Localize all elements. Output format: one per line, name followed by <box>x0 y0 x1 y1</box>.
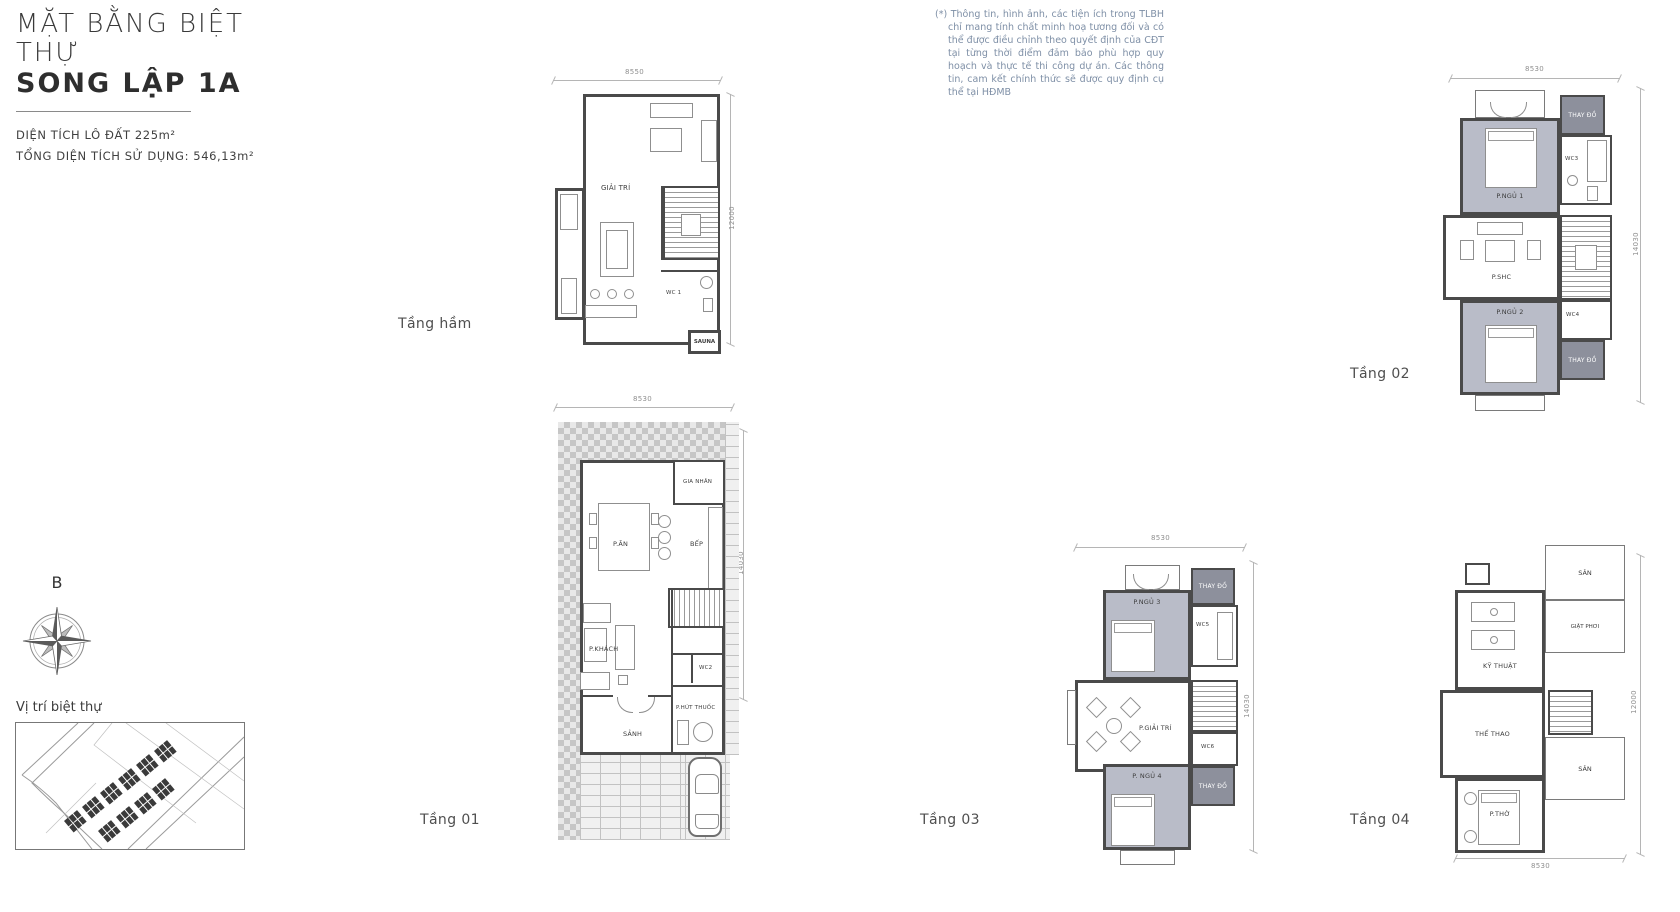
balcony <box>1475 395 1545 411</box>
total-area-text: TỔNG DIỆN TÍCH SỬ DỤNG: 546,13m² <box>16 146 316 167</box>
dining-table-furniture <box>598 503 650 571</box>
bed-furniture <box>1485 325 1537 383</box>
floor4-width-dim: 8530 <box>1531 862 1550 870</box>
room-label-wc5: WC5 <box>1196 622 1209 628</box>
floor2-width-dim-line <box>1450 78 1620 79</box>
room-label-lobby: SẢNH <box>623 730 642 738</box>
room-label-bedroom1: P.NGỦ 1 <box>1460 192 1560 200</box>
room-label-bedroom3: P.NGỦ 3 <box>1103 598 1191 606</box>
yard-top: SÂN <box>1545 545 1625 600</box>
side-balcony <box>1067 690 1076 745</box>
laundry-room: GIẶT PHƠI <box>1545 600 1625 653</box>
floor3-width-dim: 8530 <box>1151 534 1170 542</box>
bed-furniture <box>1485 128 1537 188</box>
floor1-stairs <box>668 588 725 628</box>
armchair-furniture <box>677 720 689 745</box>
coffee-table-furniture <box>1485 240 1515 262</box>
side-table-furniture <box>618 675 628 685</box>
sink-fixture <box>1567 175 1578 186</box>
floor4-height-dim: 12000 <box>1630 684 1638 720</box>
round-table-furniture <box>693 722 713 742</box>
site-map <box>15 722 245 850</box>
floor3-height-dim: 14030 <box>1243 688 1251 724</box>
armchair-furniture <box>1460 240 1474 260</box>
title-divider <box>16 111 191 112</box>
compass-rose-icon <box>14 593 100 689</box>
yard-bottom: SÂN <box>1545 737 1625 800</box>
page-title-line1: MẶT BẰNG BIỆT THỰ <box>16 10 316 67</box>
room-label-living: P.KHÁCH <box>589 645 618 653</box>
floor2-width-dim: 8530 <box>1525 65 1544 73</box>
disclaimer-note: (*) Thông tin, hình ảnh, các tiện ích tr… <box>935 8 1164 99</box>
bed-furniture <box>1111 794 1155 846</box>
floor3-stairs <box>1191 680 1238 732</box>
room-label-bedroom4: P. NGỦ 4 <box>1103 772 1191 780</box>
wc6-walls <box>1191 732 1238 766</box>
car-windshield <box>695 774 719 794</box>
interior-wall <box>691 653 693 683</box>
room-label-wc3: WC3 <box>1565 156 1578 162</box>
room-sauna: SAUNA <box>688 330 721 354</box>
floor-label-floor2: Tầng 02 <box>1350 366 1410 382</box>
room-label-kitchen: BẾP <box>690 540 703 548</box>
room-label-maid: GIA NHÂN <box>683 479 712 485</box>
side-path-paving <box>725 422 739 755</box>
site-map-drawing <box>16 723 244 849</box>
room-label-family: P.SHC <box>1443 273 1560 281</box>
entertainment-room-walls <box>1075 680 1191 772</box>
shower-fixture <box>700 276 713 289</box>
bar-counter-furniture <box>585 305 637 318</box>
lot-area-text: DIỆN TÍCH LÔ ĐẤT 225m² <box>16 125 316 146</box>
room-label-wc2: WC2 <box>699 665 712 671</box>
floor4-stairs <box>1548 690 1593 735</box>
stool-furniture <box>1464 792 1477 805</box>
room-label-wc1: WC 1 <box>666 290 681 296</box>
plan-floor1: 8530 14030 <box>553 395 753 850</box>
floor2-height-dim: 14030 <box>1632 226 1640 262</box>
interior-wall <box>661 270 720 272</box>
dressing-room-bottom: THAY ĐỒ <box>1191 766 1235 806</box>
sofa-furniture <box>701 120 717 162</box>
floor-label-floor4: Tầng 04 <box>1350 812 1410 828</box>
plan-floor2: 8530 14030 THAY ĐỒ THAY ĐỒ P.NGỦ 1 WC3 P… <box>1435 60 1647 412</box>
equipment-dial <box>1490 608 1498 616</box>
page-title-line2: SONG LẬP 1A <box>16 67 316 101</box>
floor3-width-dim-line <box>1075 547 1245 548</box>
floor2-height-dim-line <box>1640 88 1641 403</box>
round-table-furniture <box>1106 718 1122 734</box>
chair-furniture <box>589 537 597 549</box>
floor-label-basement: Tầng hầm <box>398 316 472 332</box>
bed-furniture <box>1111 620 1155 672</box>
floor4-width-dim-line <box>1455 858 1625 859</box>
equipment-dial <box>1490 636 1498 644</box>
chimney-box <box>1465 563 1490 585</box>
interior-wall <box>671 653 725 655</box>
room-label-worship: P.THỜ <box>1455 810 1545 818</box>
floor3-height-dim-line <box>1253 562 1254 852</box>
floorplan-sheet: MẶT BẰNG BIỆT THỰ SONG LẬP 1A DIỆN TÍCH … <box>0 0 1680 912</box>
sofa-furniture <box>650 103 693 118</box>
room-label-sport: THỂ THAO <box>1440 730 1545 738</box>
basement-height-dim: 12000 <box>728 200 736 236</box>
toilet-fixture <box>1587 186 1598 201</box>
pool-table-inner <box>606 230 628 269</box>
bathtub-fixture <box>1587 140 1607 182</box>
location-caption: Vị trí biệt thự <box>16 700 102 715</box>
title-block: MẶT BẰNG BIỆT THỰ SONG LẬP 1A DIỆN TÍCH … <box>16 10 316 167</box>
interior-wall <box>580 695 613 697</box>
bar-stool <box>624 289 634 299</box>
compass: B <box>14 573 100 693</box>
toilet-fixture <box>703 298 713 312</box>
dressing-room-top: THAY ĐỒ <box>1560 95 1605 135</box>
stove-fixture <box>658 547 671 560</box>
car-illustration <box>688 757 722 837</box>
floor-label-floor1: Tầng 01 <box>420 812 480 828</box>
stairs-landing <box>681 214 701 236</box>
bar-stool <box>607 289 617 299</box>
floor1-width-dim: 8530 <box>633 395 652 403</box>
sofa-furniture <box>561 278 577 314</box>
sofa-furniture <box>560 194 578 230</box>
stool-furniture <box>1464 830 1477 843</box>
chair-furniture <box>589 513 597 525</box>
table-furniture <box>650 128 682 152</box>
interior-wall <box>671 685 725 687</box>
kitchen-counter-furniture <box>708 507 723 592</box>
room-label-entertainment: P.GIẢI TRÍ <box>1139 724 1172 732</box>
interior-wall <box>671 588 673 755</box>
floor-label-floor3: Tầng 03 <box>920 812 980 828</box>
dressing-room-bottom: THAY ĐỒ <box>1560 340 1605 380</box>
car-rear-window <box>695 814 719 829</box>
floor4-height-dim-line <box>1640 555 1641 855</box>
room-label-technical: KỸ THUẬT <box>1455 662 1545 670</box>
courtyard-paving <box>580 755 685 840</box>
room-label-dining: P.ĂN <box>613 540 628 548</box>
basement-width-dim-line <box>553 80 721 81</box>
stove-fixture <box>658 531 671 544</box>
plan-basement: 8550 12000 GIẢI TRÍ WC 1 SAUNA <box>553 62 753 362</box>
basement-width-dim: 8550 <box>625 68 644 76</box>
terrace-paving <box>558 422 725 460</box>
floor1-width-dim-line <box>555 407 733 408</box>
wc4-walls <box>1560 300 1612 340</box>
dressing-room-top: THAY ĐỒ <box>1191 568 1235 605</box>
room-label-entertainment: GIẢI TRÍ <box>601 184 630 192</box>
room-label-wc6: WC6 <box>1201 744 1214 750</box>
stove-fixture <box>658 515 671 528</box>
side-paving <box>558 422 580 840</box>
stairs-landing <box>1575 245 1597 270</box>
sofa-furniture <box>580 672 610 690</box>
balcony <box>1475 90 1545 118</box>
bar-stool <box>590 289 600 299</box>
room-label-bedroom2: P.NGỦ 2 <box>1460 308 1560 316</box>
armchair-furniture <box>1527 240 1541 260</box>
plan-floor4: 12000 8530 SÂN GIẶT PHƠI SÂN KỸ THUẬT TH… <box>1438 540 1650 875</box>
interior-wall <box>661 186 663 260</box>
bathtub-fixture <box>1217 612 1233 660</box>
plan-floor3: 8530 14030 THAY ĐỒ THAY ĐỒ P.NGỦ 3 WC5 P… <box>1065 532 1265 872</box>
balcony <box>1120 850 1175 865</box>
room-label-wc4: WC4 <box>1566 312 1579 318</box>
room-label-smoking: P.HÚT THUỐC <box>676 705 715 711</box>
sofa-furniture <box>583 603 611 623</box>
sofa-furniture <box>1477 222 1523 235</box>
compass-north-label: B <box>14 573 100 592</box>
